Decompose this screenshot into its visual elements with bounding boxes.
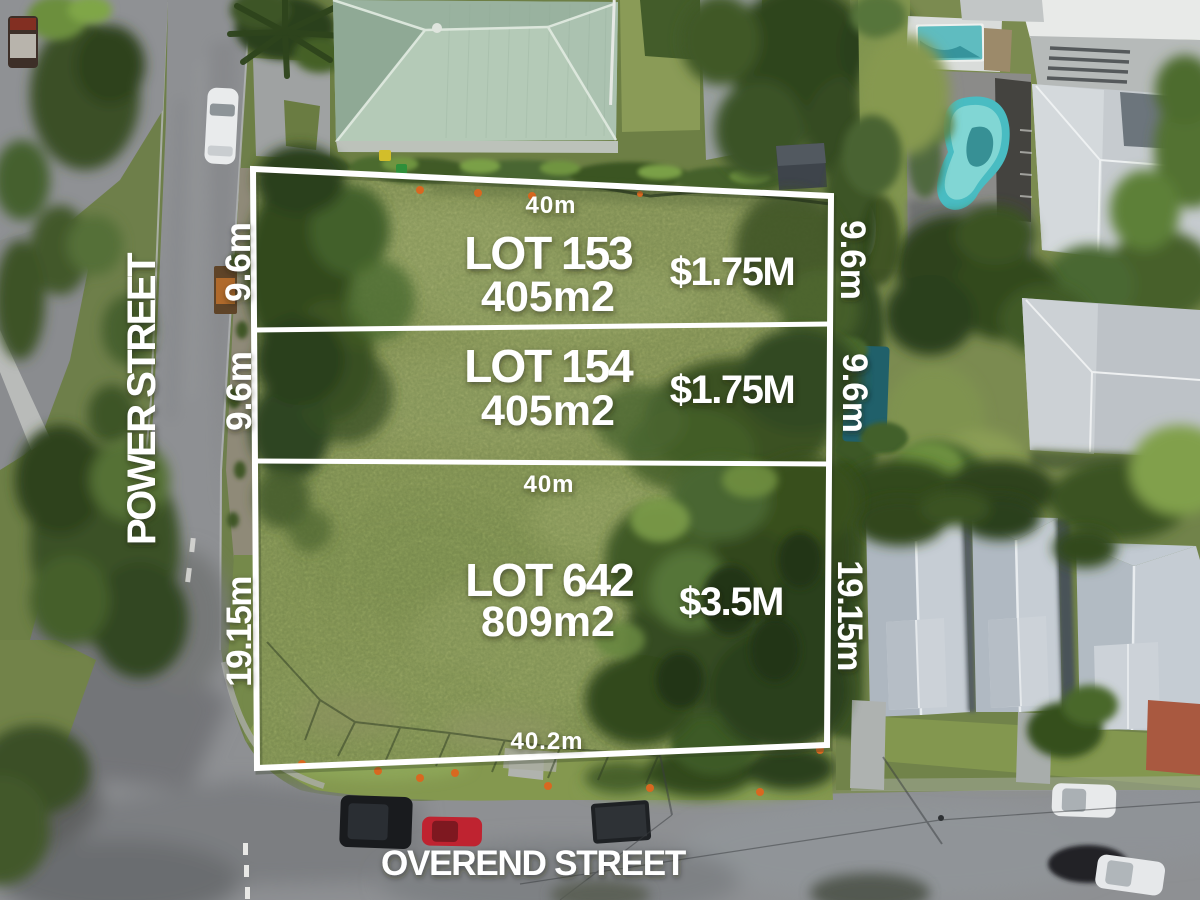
svg-text:405m2: 405m2 [481, 387, 615, 435]
svg-text:LOT 154: LOT 154 [464, 340, 634, 392]
svg-text:19.15m: 19.15m [220, 577, 259, 687]
svg-text:809m2: 809m2 [481, 598, 615, 646]
svg-text:19.15m: 19.15m [830, 560, 869, 670]
svg-text:40m: 40m [525, 192, 576, 219]
svg-text:9.6m: 9.6m [833, 220, 872, 300]
svg-text:$3.5M: $3.5M [679, 580, 783, 624]
svg-text:OVEREND STREET: OVEREND STREET [381, 844, 686, 883]
svg-text:9.6m: 9.6m [219, 222, 258, 302]
svg-text:LOT 153: LOT 153 [464, 227, 632, 279]
svg-text:40.2m: 40.2m [510, 728, 583, 755]
svg-text:405m2: 405m2 [481, 273, 615, 321]
svg-text:9.6m: 9.6m [220, 351, 259, 431]
svg-text:$1.75M: $1.75M [670, 250, 794, 294]
svg-text:$1.75M: $1.75M [670, 368, 794, 412]
svg-text:9.6m: 9.6m [835, 353, 874, 433]
svg-text:POWER STREET: POWER STREET [120, 253, 164, 545]
svg-text:40m: 40m [523, 471, 574, 498]
